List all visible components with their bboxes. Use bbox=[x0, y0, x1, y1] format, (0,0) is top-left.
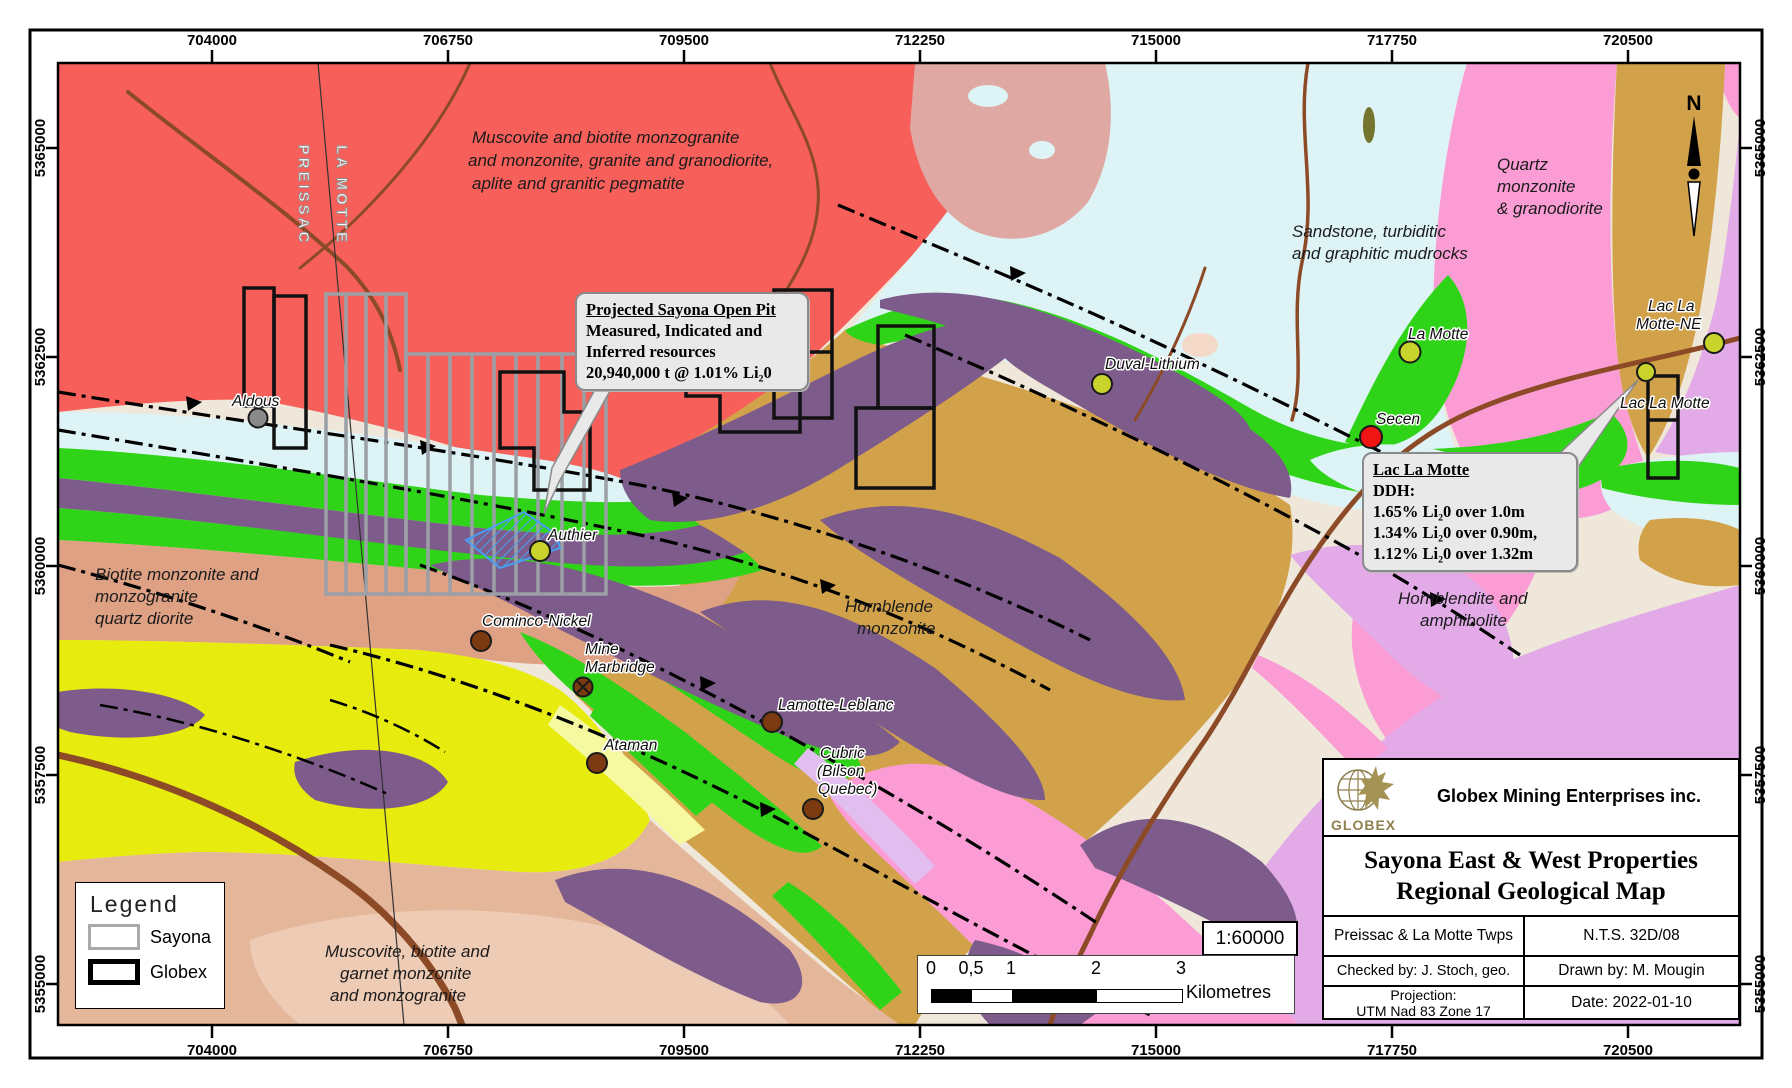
grid-label-top: 715000 bbox=[1131, 32, 1181, 49]
title-block: GLOBEX Globex Mining Enterprises inc. Sa… bbox=[1322, 758, 1740, 1020]
townships-cell: Preissac & La Motte Twps bbox=[1324, 917, 1525, 955]
projection-cell: Projection: UTM Nad 83 Zone 17 bbox=[1324, 987, 1525, 1018]
grid-label-top: 712250 bbox=[895, 32, 945, 49]
marker-label-cominco-nickel: Cominco-Nickel bbox=[482, 613, 591, 630]
checked-by-cell: Checked by: J. Stoch, geo. bbox=[1324, 957, 1525, 985]
marker-label-lac-la-motte-ne: Lac La bbox=[1648, 298, 1695, 315]
region-label: monzonite bbox=[1497, 177, 1575, 196]
scale-bar: 0 0,5 1 2 3 Kilometres bbox=[917, 955, 1295, 1014]
region-label: & granodiorite bbox=[1497, 199, 1603, 218]
township-label-preissac: PREISSAC bbox=[295, 145, 312, 246]
region-label: Muscovite, biotite and bbox=[325, 942, 490, 961]
scale-ratio: 1:60000 bbox=[1216, 928, 1285, 950]
region-label: Muscovite and biotite monzogranite bbox=[472, 128, 739, 147]
map-title-line1: Sayona East & West Properties bbox=[1324, 845, 1738, 876]
lac-la-motte-callout: Lac La Motte DDH: 1.65% Li₂0 over 1.0m 1… bbox=[1362, 452, 1578, 572]
region-label: aplite and granitic pegmatite bbox=[472, 174, 685, 193]
region-label: monzonite bbox=[857, 619, 935, 638]
region-label: garnet monzonite bbox=[340, 964, 471, 983]
olive-blob bbox=[1363, 107, 1375, 143]
legend-item-label: Sayona bbox=[150, 927, 211, 948]
scale-tick: 0,5 bbox=[958, 958, 983, 979]
grid-label-right: 5365000 bbox=[1752, 119, 1769, 177]
open-pit-callout: Projected Sayona Open Pit Measured, Indi… bbox=[575, 292, 809, 391]
grid-label-left: 5360000 bbox=[32, 537, 49, 595]
grid-label-right: 5355000 bbox=[1752, 955, 1769, 1013]
scale-tick: 1 bbox=[1006, 958, 1016, 979]
north-label: N bbox=[1686, 92, 1701, 115]
globex-logo-text: GLOBEX bbox=[1331, 817, 1396, 833]
lac-la-motte-callout-line: 1.65% Li₂0 over 1.0m bbox=[1373, 501, 1567, 522]
grid-label-bottom: 715000 bbox=[1131, 1042, 1181, 1059]
region-label: Hornblende bbox=[845, 597, 933, 616]
scale-tick: 0 bbox=[926, 958, 936, 979]
marker-label-cubric: Cubric bbox=[820, 745, 865, 762]
marker-la-motte bbox=[1400, 342, 1421, 363]
marker-authier bbox=[530, 541, 550, 561]
township-label-la-motte: LA MOTTE bbox=[333, 145, 350, 245]
marker-lamotte-leblanc bbox=[762, 712, 782, 732]
lac-la-motte-callout-line: 1.12% Li₂0 over 1.32m bbox=[1373, 543, 1567, 564]
globex-claim-swatch bbox=[88, 959, 140, 985]
region-label: monzogranite bbox=[95, 587, 198, 606]
marker-label-cubric: (Bilson bbox=[817, 763, 864, 780]
marker-label-duval-lithium: Duval-Lithium bbox=[1105, 356, 1200, 373]
lac-la-motte-callout-title: Lac La Motte bbox=[1373, 459, 1567, 480]
marker-label-ataman: Ataman bbox=[603, 737, 657, 754]
region-label: Quartz bbox=[1497, 155, 1549, 174]
scale-ratio-box: 1:60000 bbox=[1202, 921, 1298, 956]
legend-item-globex: Globex bbox=[88, 959, 224, 985]
marker-cubric bbox=[803, 799, 823, 819]
marker-label-lac-la-motte-ne: Motte-NE bbox=[1636, 316, 1702, 333]
date-cell: Date: 2022-01-10 bbox=[1525, 987, 1738, 1018]
company-name: Globex Mining Enterprises inc. bbox=[1406, 786, 1732, 807]
legend-item-sayona: Sayona bbox=[88, 924, 224, 950]
marker-aldous bbox=[249, 409, 268, 428]
marker-lac-la-motte bbox=[1637, 363, 1655, 381]
grid-label-bottom: 720500 bbox=[1603, 1042, 1653, 1059]
marker-cominco-nickel bbox=[471, 631, 491, 651]
scale-tick: 2 bbox=[1091, 958, 1101, 979]
marker-secen bbox=[1360, 426, 1382, 448]
grid-label-top: 717750 bbox=[1367, 32, 1417, 49]
map-title-line2: Regional Geological Map bbox=[1324, 876, 1738, 907]
marker-label-cubric: Quebec) bbox=[818, 781, 877, 798]
legend-title: Legend bbox=[90, 891, 224, 918]
grid-label-right: 5362500 bbox=[1752, 328, 1769, 386]
grid-label-top: 704000 bbox=[187, 32, 237, 49]
open-pit-callout-title: Projected Sayona Open Pit bbox=[586, 299, 798, 320]
grid-label-left: 5365000 bbox=[32, 119, 49, 177]
marker-duval-lithium bbox=[1092, 374, 1112, 394]
legend-item-label: Globex bbox=[150, 962, 207, 983]
open-pit-callout-line: Measured, Indicated and bbox=[586, 320, 798, 341]
grid-label-top: 706750 bbox=[423, 32, 473, 49]
region-label: amphibolite bbox=[1420, 611, 1507, 630]
open-pit-callout-line: 20,940,000 t @ 1.01% Li₂0 bbox=[586, 362, 798, 383]
open-pit-callout-line: Inferred resources bbox=[586, 341, 798, 362]
scale-bar-segments bbox=[931, 989, 1183, 1003]
lac-la-motte-callout-line: DDH: bbox=[1373, 480, 1567, 501]
marker-label-aldous: Aldous bbox=[231, 393, 280, 410]
region-label: Biotite monzonite and bbox=[95, 565, 259, 584]
sayona-claim-swatch bbox=[88, 924, 140, 950]
drawn-by-cell: Drawn by: M. Mougin bbox=[1525, 957, 1738, 985]
grid-label-right: 5360000 bbox=[1752, 537, 1769, 595]
grid-label-top: 709500 bbox=[659, 32, 709, 49]
globex-logo bbox=[1332, 764, 1396, 820]
marker-label-lamotte-leblanc: Lamotte-Leblanc bbox=[778, 697, 894, 714]
lac-la-motte-callout-line: 1.34% Li₂0 over 0.90m, bbox=[1373, 522, 1567, 543]
marker-label-secen: Secen bbox=[1376, 411, 1420, 428]
marker-label-authier: Authier bbox=[547, 527, 598, 544]
marker-label-mine-marbridge: Marbridge bbox=[585, 659, 655, 676]
region-label: and graphitic mudrocks bbox=[1292, 244, 1468, 263]
maple-leaf-icon bbox=[1358, 766, 1394, 810]
grid-label-bottom: 712250 bbox=[895, 1042, 945, 1059]
grid-label-left: 5355000 bbox=[32, 955, 49, 1013]
grid-label-right: 5357500 bbox=[1752, 746, 1769, 804]
grid-label-left: 5362500 bbox=[32, 328, 49, 386]
grid-label-bottom: 706750 bbox=[423, 1042, 473, 1059]
marker-label-la-motte: La Motte bbox=[1408, 326, 1469, 343]
region-label: Sandstone, turbiditic bbox=[1292, 222, 1447, 241]
scale-unit: Kilometres bbox=[1186, 982, 1271, 1003]
grid-label-bottom: 704000 bbox=[187, 1042, 237, 1059]
nts-cell: N.T.S. 32D/08 bbox=[1525, 917, 1738, 955]
grid-label-bottom: 717750 bbox=[1367, 1042, 1417, 1059]
region-label: and monzonite, granite and granodiorite, bbox=[468, 151, 773, 170]
legend: Legend Sayona Globex bbox=[75, 882, 225, 1009]
projection-value: UTM Nad 83 Zone 17 bbox=[1356, 1003, 1491, 1019]
marker-ataman bbox=[587, 753, 607, 773]
marker-label-mine-marbridge: Mine bbox=[585, 641, 619, 658]
grid-label-bottom: 709500 bbox=[659, 1042, 709, 1059]
grid-label-left: 5357500 bbox=[32, 746, 49, 804]
marker-lac-la-motte-ne bbox=[1704, 333, 1724, 353]
projection-label: Projection: bbox=[1390, 987, 1456, 1003]
marker-label-lac-la-motte: Lac La Motte bbox=[1620, 395, 1710, 412]
region-label: and monzogranite bbox=[330, 986, 466, 1005]
region-label: quartz diorite bbox=[95, 609, 193, 628]
scale-tick: 3 bbox=[1176, 958, 1186, 979]
region-label: Hornblendite and bbox=[1398, 589, 1528, 608]
grid-label-top: 720500 bbox=[1603, 32, 1653, 49]
